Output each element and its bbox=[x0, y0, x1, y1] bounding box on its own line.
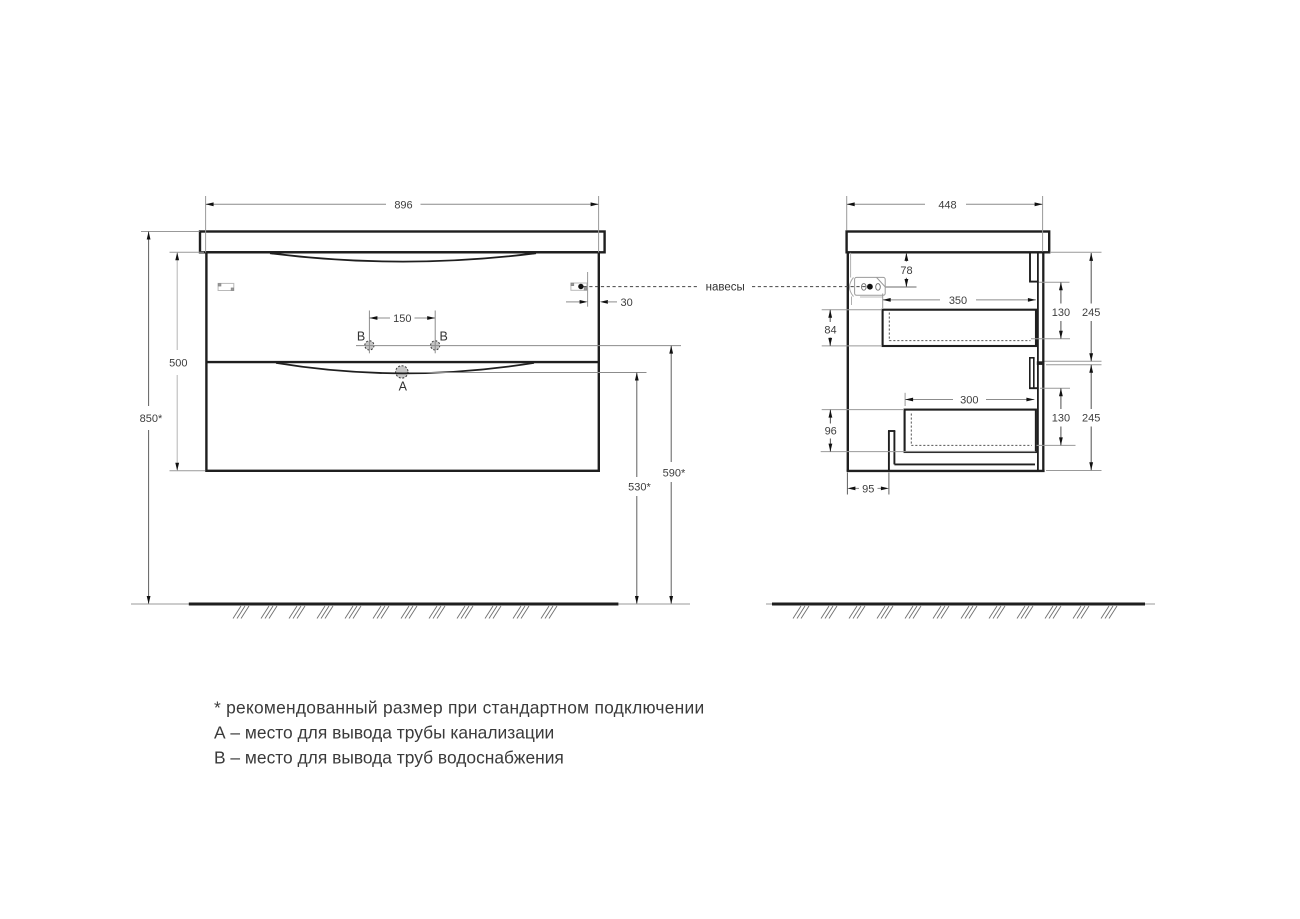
svg-text:130: 130 bbox=[1052, 307, 1070, 319]
svg-text:* рекомендованный размер при с: * рекомендованный размер при стандартном… bbox=[214, 698, 704, 718]
svg-text:300: 300 bbox=[960, 394, 978, 406]
svg-text:А – место для вывода трубы кан: А – место для вывода трубы канализации bbox=[214, 723, 554, 743]
svg-text:30: 30 bbox=[621, 297, 633, 309]
svg-text:A: A bbox=[399, 380, 408, 394]
svg-text:896: 896 bbox=[394, 199, 412, 211]
svg-text:448: 448 bbox=[938, 199, 956, 211]
svg-text:96: 96 bbox=[825, 426, 837, 438]
svg-text:78: 78 bbox=[900, 265, 912, 277]
svg-text:B: B bbox=[440, 329, 448, 343]
svg-text:В – место для вывода труб водо: В – место для вывода труб водоснабжения bbox=[214, 748, 564, 768]
svg-text:150: 150 bbox=[393, 313, 411, 325]
svg-text:850*: 850* bbox=[140, 413, 163, 425]
svg-text:B: B bbox=[357, 329, 365, 343]
svg-text:84: 84 bbox=[824, 325, 836, 337]
svg-text:навесы: навесы bbox=[706, 281, 745, 293]
svg-text:500: 500 bbox=[169, 358, 187, 370]
svg-text:130: 130 bbox=[1052, 413, 1070, 425]
svg-text:245: 245 bbox=[1082, 307, 1100, 319]
svg-text:245: 245 bbox=[1082, 413, 1100, 425]
svg-text:95: 95 bbox=[862, 483, 874, 495]
svg-text:590*: 590* bbox=[663, 468, 686, 480]
svg-text:530*: 530* bbox=[628, 482, 651, 494]
svg-text:350: 350 bbox=[949, 295, 967, 307]
